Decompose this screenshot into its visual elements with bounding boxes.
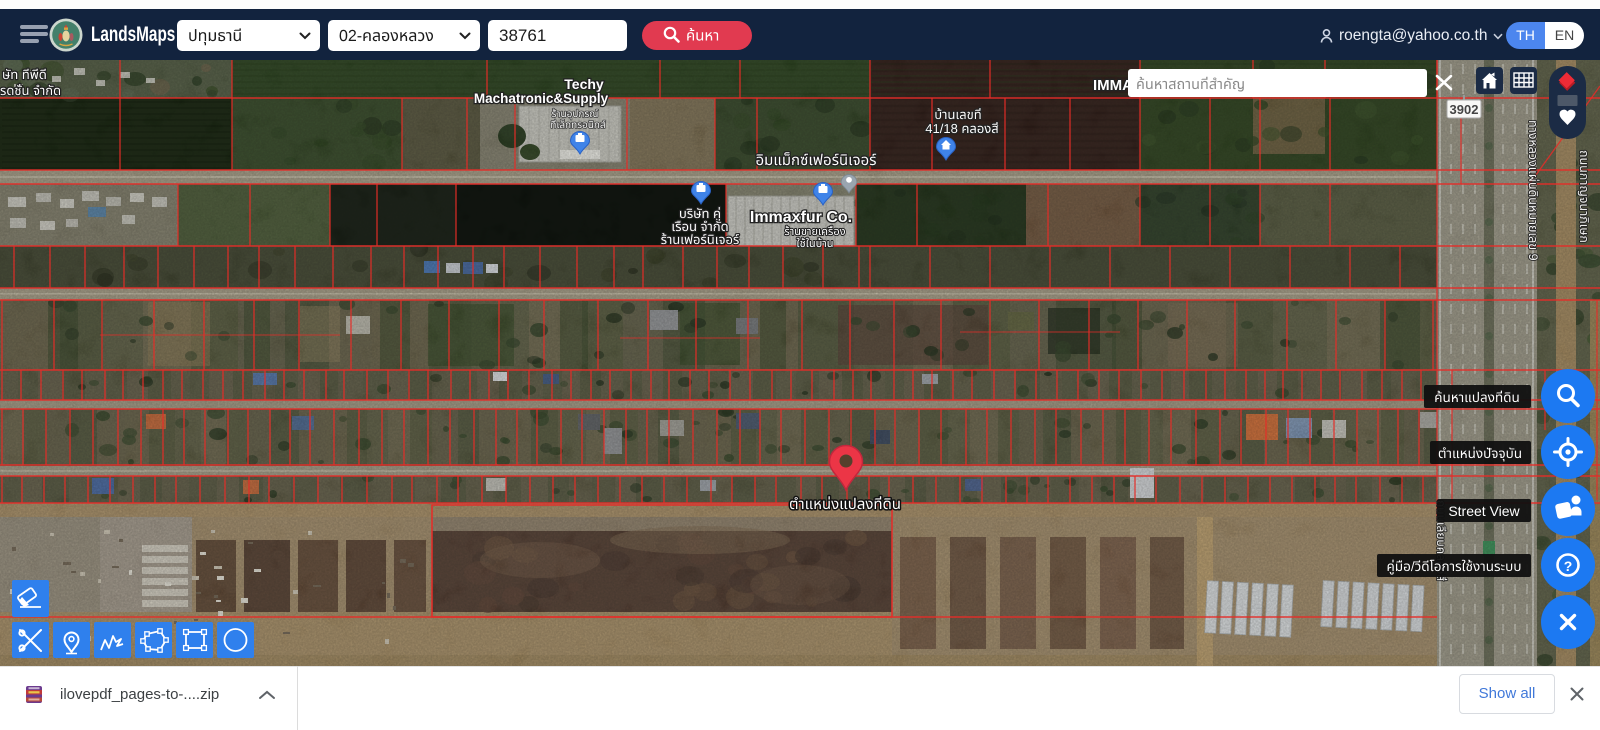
svg-text:Techy: Techy	[564, 76, 604, 92]
svg-text:3902: 3902	[1450, 102, 1479, 117]
svg-text:Street View: Street View	[1448, 503, 1520, 519]
svg-text:Machatronic&Supply: Machatronic&Supply	[474, 91, 609, 106]
svg-text:Immaxfur Co.: Immaxfur Co.	[750, 209, 852, 226]
svg-text:?: ?	[1564, 558, 1573, 574]
svg-text:IMMA: IMMA	[1093, 77, 1133, 94]
